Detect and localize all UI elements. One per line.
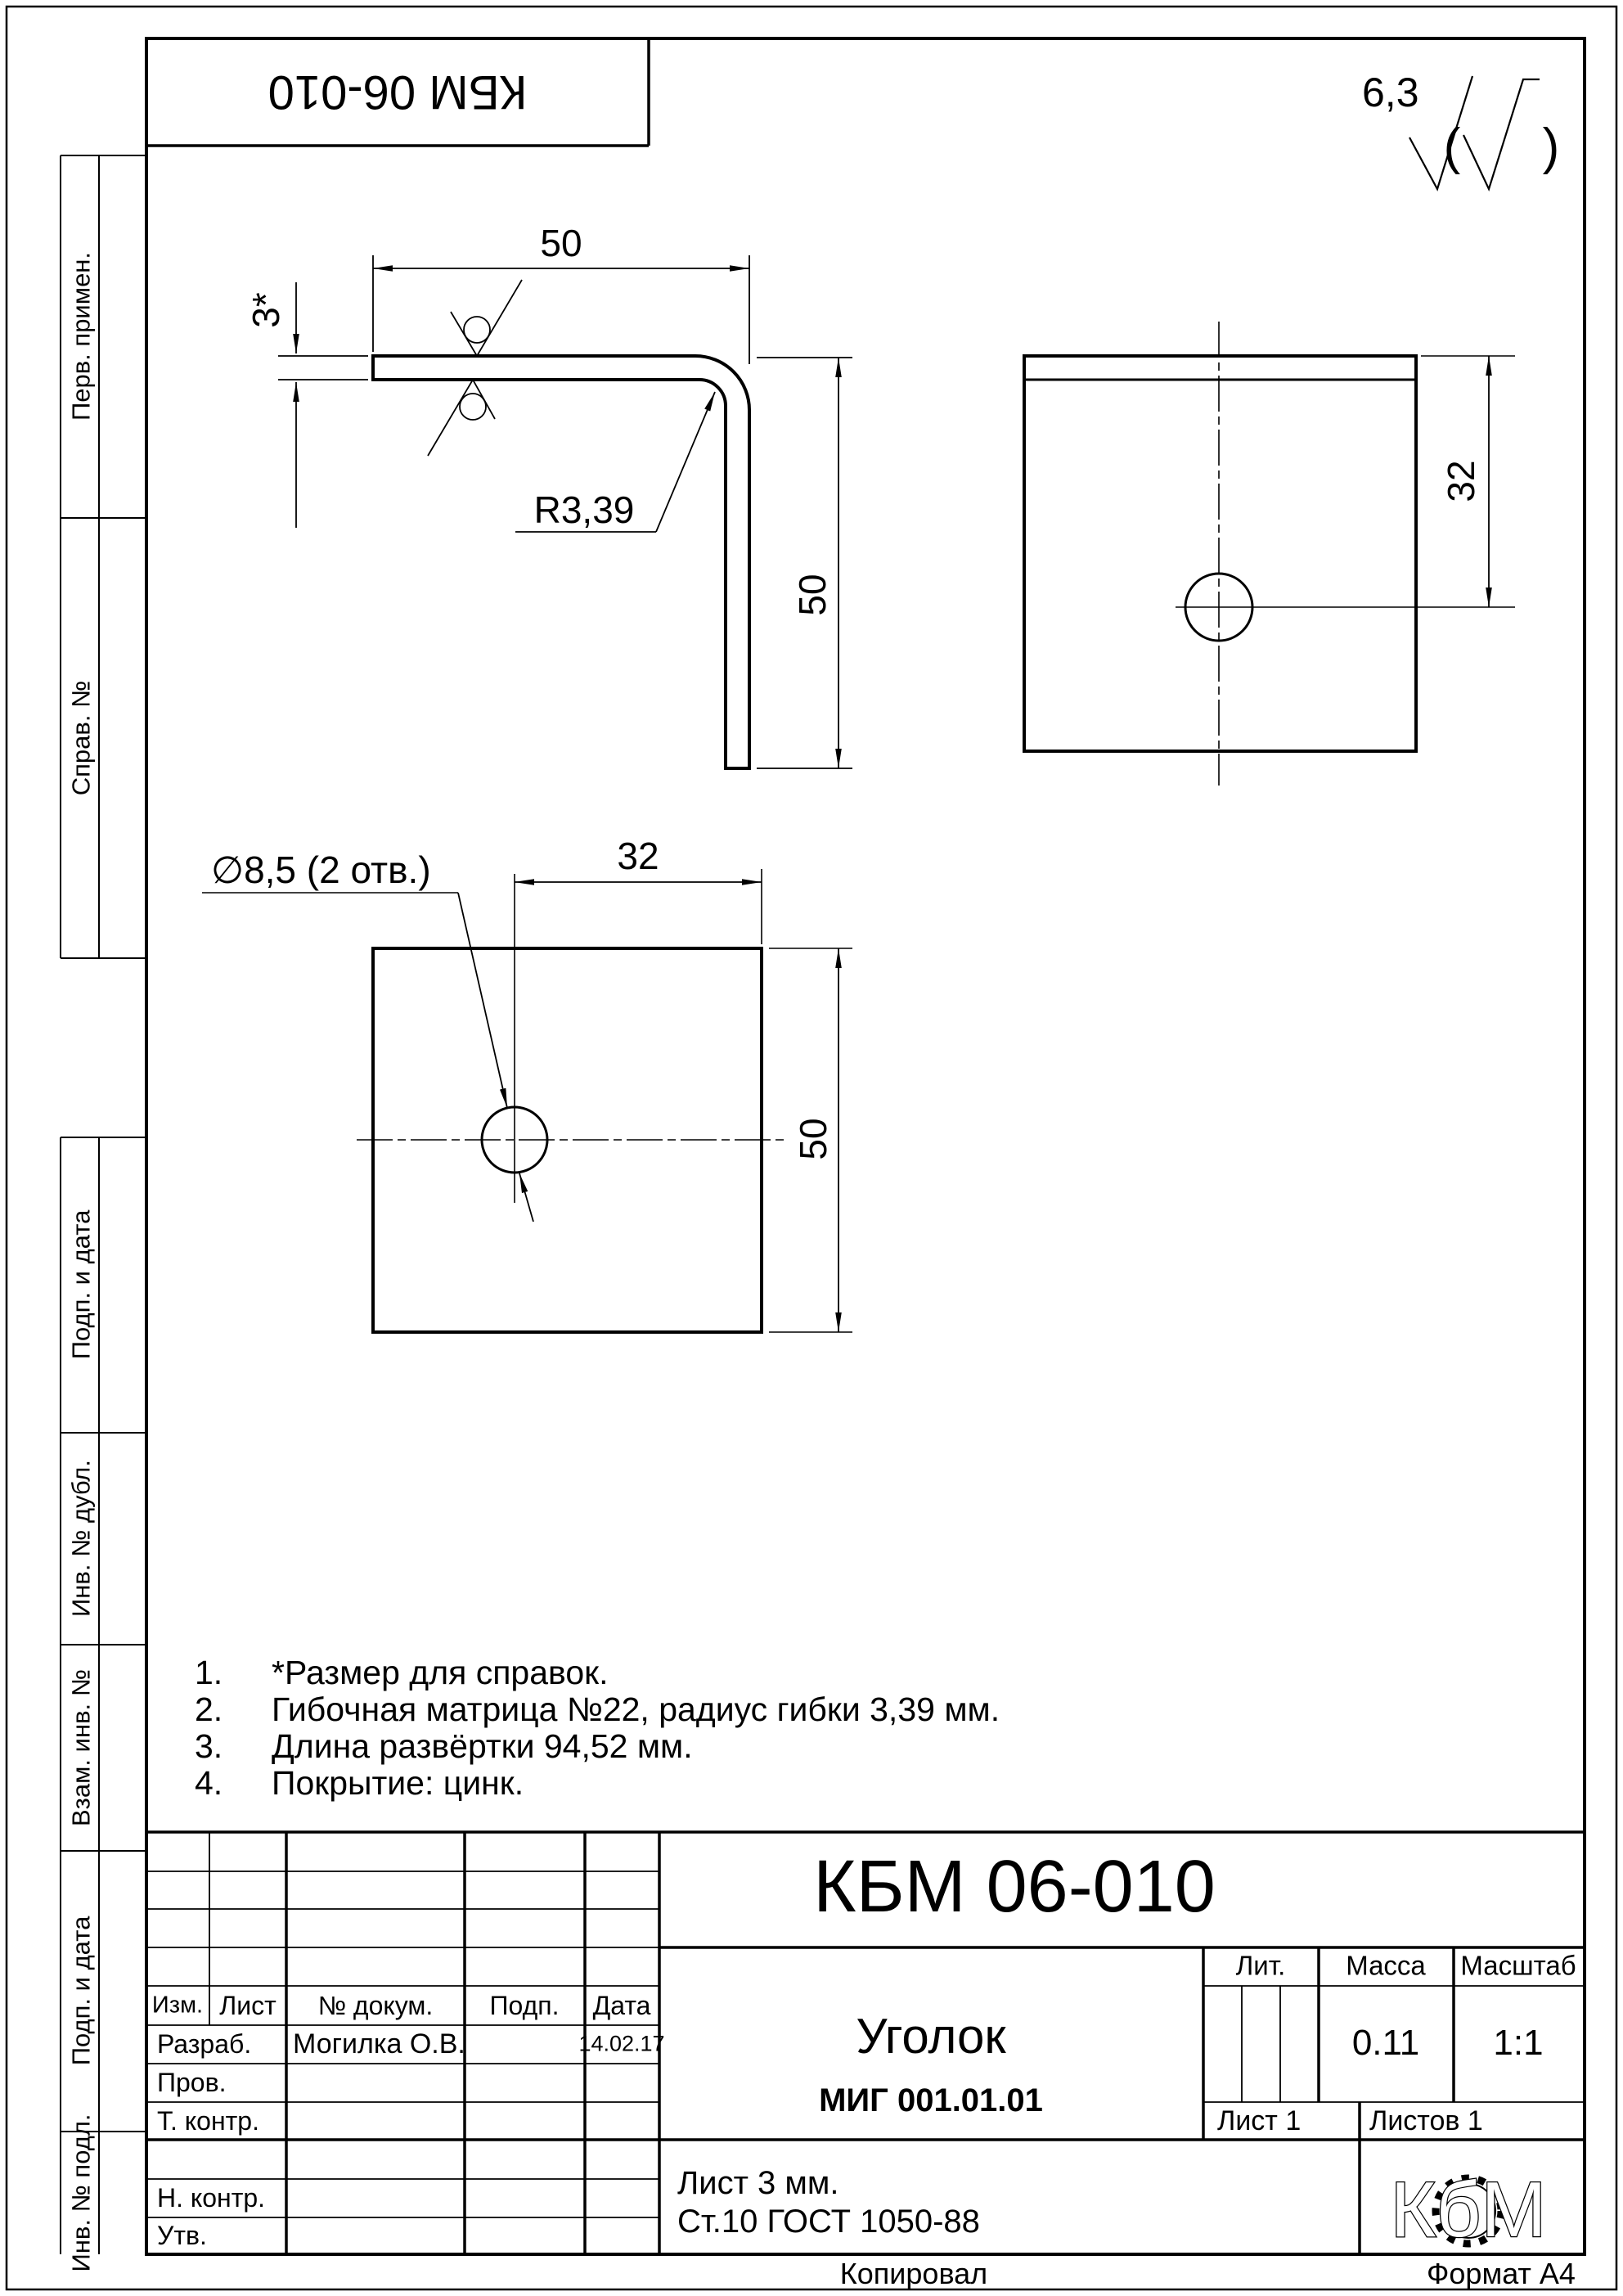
view-side-outline xyxy=(373,356,749,768)
tb-role-approver: Утв. xyxy=(157,2222,207,2249)
company-logo: КбМ xyxy=(1391,2166,1547,2253)
tb-role-tcontrol: Т. контр. xyxy=(157,2108,259,2134)
note-text: Покрытие: цинк. xyxy=(272,1764,524,1802)
roughness-paren-open: ( xyxy=(1444,122,1461,173)
note-number: 1. xyxy=(195,1654,272,1692)
note-number: 3. xyxy=(195,1727,272,1766)
margin-label-vzam-inv-no: Взам. инв. № xyxy=(69,1669,94,1826)
dim-radius-value: R3,39 xyxy=(534,491,635,529)
tb-doc-code: МИГ 001.01.01 xyxy=(819,2084,1043,2117)
note-number: 4. xyxy=(195,1764,272,1803)
tb-header-podp: Подп. xyxy=(490,1992,560,2019)
tb-lit-label: Лит. xyxy=(1236,1952,1286,1979)
tb-header-doc: № докум. xyxy=(318,1992,434,2019)
tb-developer-name: Могилка О.В. xyxy=(293,2030,465,2058)
notes-list: 1.*Размер для справок. 2.Гибочная матриц… xyxy=(195,1654,1000,1801)
dim-height-side-value: 50 xyxy=(794,574,831,615)
copied-label: Копировал xyxy=(840,2259,987,2289)
margin-label-podp-i-data-2: Подп. и дата xyxy=(69,1916,94,2066)
roughness-check-icon xyxy=(1409,76,1540,189)
note-text: Длина развёртки 94,52 мм. xyxy=(272,1727,693,1765)
view-face-dimensions xyxy=(1176,322,1515,786)
dim-hole-offset-flat-value: 32 xyxy=(617,837,659,875)
tb-material-line1: Лист 3 мм. xyxy=(677,2167,839,2199)
note-item: 3.Длина развёртки 94,52 мм. xyxy=(195,1727,1000,1764)
dim-width-value: 50 xyxy=(540,224,582,262)
note-item: 4.Покрытие: цинк. xyxy=(195,1764,1000,1801)
top-stamp-designation: КБМ 06-010 xyxy=(268,68,528,115)
tb-mass-value: 0.11 xyxy=(1352,2025,1419,2061)
margin-label-inv-no-dubl: Инв. № дубл. xyxy=(69,1460,94,1617)
tb-header-date: Дата xyxy=(593,1992,651,2019)
note-item: 1.*Размер для справок. xyxy=(195,1654,1000,1690)
view-flat-dimensions xyxy=(202,869,852,1332)
dim-height-flat-value: 50 xyxy=(794,1118,832,1159)
format-label: Формат А4 xyxy=(1427,2259,1576,2289)
view-face-outline xyxy=(1024,356,1416,751)
note-text: Гибочная матрица №22, радиус гибки 3,39 … xyxy=(272,1690,1000,1728)
tb-header-izm: Изм. xyxy=(152,1994,203,2018)
tb-mass-label: Масса xyxy=(1346,1952,1426,1979)
tb-part-name: Уголок xyxy=(856,2012,1005,2061)
logo-text: КбМ xyxy=(1391,2166,1547,2253)
roughness-paren-close: ) xyxy=(1543,122,1560,173)
tb-role-ncontrol: Н. контр. xyxy=(157,2185,265,2211)
bend-stamp-symbol xyxy=(428,280,522,456)
tb-role-developer: Разраб. xyxy=(157,2031,251,2057)
note-item: 2.Гибочная матрица №22, радиус гибки 3,3… xyxy=(195,1690,1000,1727)
tb-role-checker: Пров. xyxy=(157,2069,226,2096)
dim-hole-offset-face-value: 32 xyxy=(1442,460,1480,502)
margin-label-inv-no-podl: Инв. № подл. xyxy=(69,2114,94,2271)
tb-material-line2: Ст.10 ГОСТ 1050-88 xyxy=(677,2205,980,2238)
note-text: *Размер для справок. xyxy=(272,1654,608,1691)
hole-callout: ∅8,5 (2 отв.) xyxy=(211,851,431,889)
margin-label-perv-primen: Перв. примен. xyxy=(69,252,94,421)
drawing-sheet: КбМ КБМ 06-010 6,3 ( ) Перв. примен. Спр… xyxy=(0,0,1623,2296)
margin-label-sprav-no: Справ. № xyxy=(69,681,94,796)
tb-header-list: Лист xyxy=(219,1992,276,2019)
tb-scale-label: Масштаб xyxy=(1460,1952,1576,1979)
tb-designation: КБМ 06-010 xyxy=(813,1850,1216,1924)
dim-thickness-value: 3* xyxy=(247,292,285,327)
tb-sheet: Лист 1 xyxy=(1217,2107,1301,2135)
margin-label-podp-i-data-1: Подп. и дата xyxy=(69,1210,94,1360)
note-number: 2. xyxy=(195,1690,272,1729)
tb-scale-value: 1:1 xyxy=(1493,2025,1543,2061)
tb-sheets: Листов 1 xyxy=(1369,2107,1483,2135)
roughness-value: 6,3 xyxy=(1362,72,1419,113)
tb-developer-date: 14.02.17 xyxy=(578,2033,664,2055)
